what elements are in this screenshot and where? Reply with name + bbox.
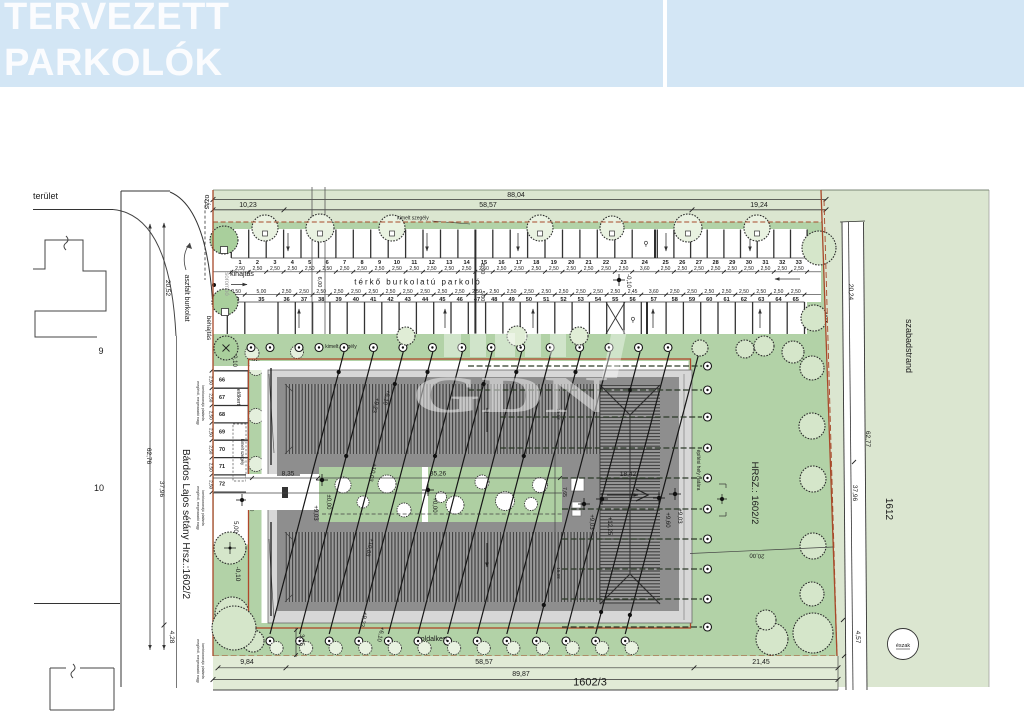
svg-text:15,98: 15,98 [556, 567, 561, 579]
svg-text:71: 71 [219, 464, 225, 470]
svg-text:-0,10: -0,10 [625, 274, 631, 288]
svg-text:kimelt szegély: kimelt szegély [240, 439, 245, 466]
svg-text:2,50: 2,50 [704, 289, 714, 295]
svg-text:2,50: 2,50 [270, 266, 280, 272]
svg-text:2,50: 2,50 [774, 289, 784, 295]
svg-text:64: 64 [775, 297, 782, 303]
svg-text:57: 57 [651, 297, 657, 303]
svg-text:49: 49 [508, 297, 514, 303]
svg-text:37,96: 37,96 [158, 481, 165, 498]
svg-text:20,00: 20,00 [749, 552, 765, 559]
svg-text:2,50: 2,50 [524, 289, 534, 295]
svg-text:2,50: 2,50 [386, 289, 396, 295]
svg-text:4,57: 4,57 [854, 631, 861, 644]
svg-text:2,50: 2,50 [661, 266, 671, 272]
svg-text:2,50: 2,50 [619, 266, 629, 272]
svg-text:2,50: 2,50 [357, 266, 367, 272]
svg-text:40: 40 [353, 297, 359, 303]
svg-text:+9,03: +9,03 [588, 514, 594, 530]
svg-text:2,50: 2,50 [368, 289, 378, 295]
svg-text:kimelt szegély: kimelt szegély [397, 216, 429, 222]
svg-text:58,57: 58,57 [475, 659, 493, 666]
svg-text:58: 58 [672, 297, 678, 303]
svg-text:2,50: 2,50 [531, 266, 541, 272]
svg-text:2,50: 2,50 [576, 289, 586, 295]
svg-text:21,45: 21,45 [752, 659, 770, 666]
svg-text:37,96: 37,96 [851, 485, 858, 502]
svg-text:2,50: 2,50 [340, 266, 350, 272]
svg-text:2,50: 2,50 [794, 266, 804, 272]
svg-text:38: 38 [318, 297, 324, 303]
svg-text:2,50: 2,50 [507, 289, 517, 295]
svg-text:3,60: 3,60 [649, 289, 659, 295]
svg-text:58,57: 58,57 [479, 202, 497, 209]
svg-text:lombkoronájú platánfa: lombkoronájú platánfa [201, 490, 205, 525]
svg-text:2,50: 2,50 [409, 266, 419, 272]
svg-text:59: 59 [689, 297, 695, 303]
svg-text:70: 70 [219, 447, 225, 453]
svg-text:41: 41 [370, 297, 376, 303]
svg-text:2,50: 2,50 [584, 266, 594, 272]
svg-text:46: 46 [457, 297, 463, 303]
svg-text:2,50: 2,50 [677, 266, 687, 272]
svg-text:kihajtás: kihajtás [230, 271, 254, 278]
svg-text:2,50: 2,50 [791, 289, 801, 295]
svg-text:5,00: 5,00 [257, 289, 267, 295]
svg-text:2,50: 2,50 [444, 266, 454, 272]
svg-text:2,50: 2,50 [739, 289, 749, 295]
svg-text:8,35: 8,35 [282, 471, 295, 478]
svg-text:2,50: 2,50 [427, 266, 437, 272]
svg-text:9,84: 9,84 [240, 659, 254, 666]
svg-text:⚲: ⚲ [643, 240, 648, 248]
svg-text:meglévő, megmaradó nagy: meglévő, megmaradó nagy [196, 639, 200, 683]
svg-text:43: 43 [405, 297, 411, 303]
svg-text:35: 35 [258, 297, 264, 303]
svg-text:7,65: 7,65 [561, 487, 567, 497]
svg-text:TERVEZETT: TERVEZETT [4, 0, 230, 38]
svg-text:PARKOLÓK: PARKOLÓK [4, 40, 223, 84]
svg-text:20,52: 20,52 [164, 280, 171, 297]
svg-text:5,00: 5,00 [479, 264, 485, 275]
svg-text:2,45: 2,45 [628, 289, 638, 295]
svg-text:60: 60 [706, 297, 712, 303]
svg-text:61: 61 [723, 297, 729, 303]
svg-text:53: 53 [578, 297, 584, 303]
svg-text:lombkoronájú platánfa: lombkoronájú platánfa [201, 385, 205, 420]
svg-text:±0,00: ±0,00 [325, 495, 331, 511]
svg-text:63: 63 [758, 297, 764, 303]
svg-text:10,23: 10,23 [239, 202, 257, 209]
svg-text:2,50: 2,50 [670, 289, 680, 295]
svg-text:sorompó: sorompó [223, 272, 229, 296]
svg-text:67: 67 [219, 395, 225, 401]
svg-text:72: 72 [219, 482, 225, 488]
svg-text:előkert: előkert [235, 389, 241, 406]
svg-text:35,26: 35,26 [430, 471, 447, 478]
svg-text:+12,25: +12,25 [606, 517, 612, 536]
svg-text:2,50: 2,50 [722, 289, 732, 295]
svg-text:2,50: 2,50 [687, 289, 697, 295]
svg-text:5,00: 5,00 [232, 521, 238, 533]
svg-text:2,50: 2,50 [711, 266, 721, 272]
svg-text:észak: észak [896, 643, 911, 649]
svg-text:HRSZ.: 1602/2: HRSZ.: 1602/2 [749, 462, 760, 525]
svg-text:50: 50 [526, 297, 532, 303]
svg-text:9: 9 [98, 346, 103, 356]
svg-text:62,76: 62,76 [145, 448, 152, 465]
svg-text:37: 37 [301, 297, 307, 303]
svg-text:6,00: 6,00 [316, 277, 322, 288]
svg-text:építési hely határa: építési hely határa [695, 450, 701, 491]
svg-text:2,50: 2,50 [282, 289, 292, 295]
svg-text:5,00: 5,00 [479, 291, 485, 302]
svg-text:2,50: 2,50 [375, 266, 385, 272]
svg-text:2,50: 2,50 [351, 289, 361, 295]
svg-text:2,50: 2,50 [727, 266, 737, 272]
svg-text:89,87: 89,87 [512, 671, 530, 678]
svg-text:48: 48 [491, 297, 497, 303]
svg-text:62: 62 [741, 297, 747, 303]
svg-text:2,50: 2,50 [305, 266, 315, 272]
svg-text:2,50: 2,50 [761, 266, 771, 272]
svg-text:2,50: 2,50 [438, 289, 448, 295]
svg-text:2,50: 2,50 [489, 289, 499, 295]
svg-text:-0,10: -0,10 [234, 567, 241, 582]
svg-text:2,50: 2,50 [420, 289, 430, 295]
svg-text:1612: 1612 [883, 498, 894, 521]
svg-text:3,60: 3,60 [640, 266, 650, 272]
svg-text:ozás: ozás [203, 195, 210, 210]
svg-text:2,50: 2,50 [462, 266, 472, 272]
svg-text:20,24: 20,24 [847, 284, 854, 301]
svg-text:88,04: 88,04 [507, 192, 525, 199]
svg-text:42: 42 [387, 297, 393, 303]
svg-text:44: 44 [422, 297, 429, 303]
svg-text:2,50: 2,50 [541, 289, 551, 295]
svg-text:behajtás: behajtás [205, 316, 212, 341]
svg-text:+9,60: +9,60 [664, 512, 670, 528]
svg-text:62,77: 62,77 [864, 431, 871, 448]
svg-text:54: 54 [595, 297, 602, 303]
svg-text:meglévő, megmaradó nagy: meglévő, megmaradó nagy [196, 381, 200, 425]
svg-text:2,50: 2,50 [392, 266, 402, 272]
svg-text:65: 65 [793, 297, 799, 303]
svg-text:68: 68 [219, 412, 225, 418]
svg-text:51: 51 [543, 297, 549, 303]
svg-text:2,50: 2,50 [559, 289, 569, 295]
svg-text:69: 69 [219, 430, 225, 436]
svg-text:2,50: 2,50 [566, 266, 576, 272]
svg-text:2,50: 2,50 [694, 266, 704, 272]
svg-text:2,50: 2,50 [253, 266, 263, 272]
svg-text:2,50: 2,50 [322, 266, 332, 272]
svg-text:aszfalt burkolat: aszfalt burkolat [183, 274, 190, 321]
svg-text:2,50: 2,50 [744, 266, 754, 272]
svg-text:+9,03: +9,03 [312, 505, 318, 521]
svg-text:2,50: 2,50 [497, 266, 507, 272]
svg-text:Bárdos Lajos sétány Hrsz.:1602: Bárdos Lajos sétány Hrsz.:1602/2 [180, 449, 191, 600]
svg-text:GDN: GDN [412, 367, 608, 424]
svg-text:18,42: 18,42 [620, 471, 637, 478]
svg-text:2,50: 2,50 [514, 266, 524, 272]
svg-text:+9,03: +9,03 [676, 508, 682, 524]
svg-text:56: 56 [629, 297, 635, 303]
svg-text:⚲: ⚲ [630, 316, 635, 324]
svg-text:52: 52 [560, 297, 566, 303]
svg-text:2,50: 2,50 [455, 289, 465, 295]
svg-text:2,50: 2,50 [334, 289, 344, 295]
svg-text:2,50: 2,50 [403, 289, 413, 295]
svg-text:szabadstrand: szabadstrand [904, 319, 914, 373]
svg-text:55: 55 [612, 297, 618, 303]
svg-text:2,50: 2,50 [299, 289, 309, 295]
svg-text:oldalkert: oldalkert [421, 636, 448, 643]
svg-text:meglévő, megmaradó nagy: meglévő, megmaradó nagy [196, 486, 200, 530]
svg-text:+0,00: +0,00 [431, 497, 437, 513]
svg-text:2,50: 2,50 [287, 266, 297, 272]
svg-text:2,50: 2,50 [756, 289, 766, 295]
svg-text:39: 39 [335, 297, 341, 303]
svg-text:10: 10 [94, 483, 104, 493]
svg-text:36: 36 [283, 297, 289, 303]
svg-text:térkő burkolatú parkoló: térkő burkolatú parkoló [354, 278, 481, 287]
svg-text:19,24: 19,24 [750, 202, 768, 209]
svg-text:66: 66 [219, 378, 225, 384]
svg-text:45: 45 [439, 297, 445, 303]
svg-text:lombkoronájú platánfa: lombkoronájú platánfa [201, 643, 205, 678]
svg-text:2,50: 2,50 [593, 289, 603, 295]
svg-text:2,50: 2,50 [777, 266, 787, 272]
svg-text:4,28: 4,28 [168, 631, 175, 644]
svg-text:1602/3: 1602/3 [573, 677, 607, 689]
svg-text:terület: terület [33, 191, 59, 201]
svg-text:3,75: 3,75 [298, 634, 304, 646]
svg-text:2,50: 2,50 [549, 266, 559, 272]
svg-text:2,50: 2,50 [601, 266, 611, 272]
svg-text:2,50: 2,50 [610, 289, 620, 295]
